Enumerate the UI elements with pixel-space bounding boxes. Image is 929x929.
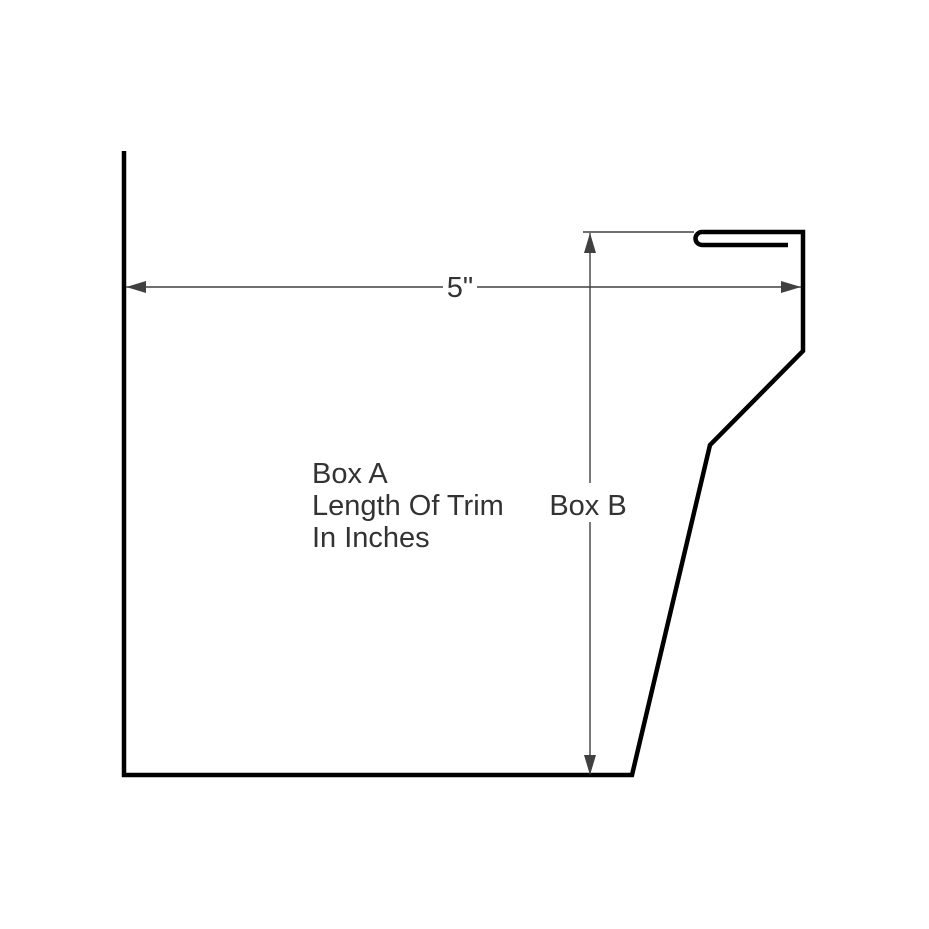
arrowhead-down-icon	[584, 755, 596, 775]
box-a-label-line2: Length Of Trim	[312, 490, 504, 522]
arrowhead-up-icon	[584, 233, 596, 253]
arrowhead-left-icon	[126, 281, 146, 293]
width-dimension-label: 5"	[447, 272, 473, 304]
arrowhead-right-icon	[781, 281, 801, 293]
trim-profile-outline	[124, 151, 803, 775]
box-a-label-line1: Box A	[312, 458, 388, 490]
trim-diagram-canvas: 5" Box A Length Of Trim In Inches Box B	[0, 0, 929, 929]
trim-diagram-svg: 5" Box A Length Of Trim In Inches Box B	[0, 0, 929, 929]
box-b-label: Box B	[549, 490, 626, 522]
box-a-label-line3: In Inches	[312, 522, 430, 554]
